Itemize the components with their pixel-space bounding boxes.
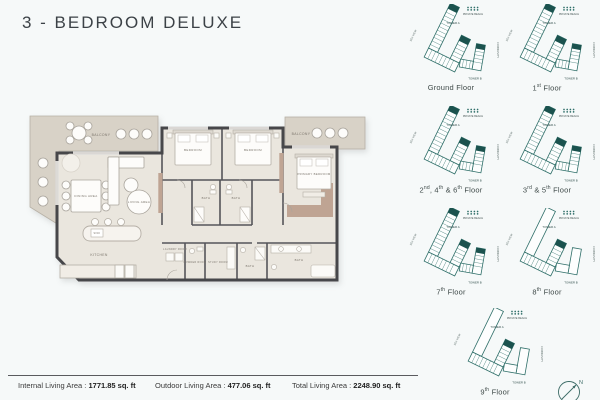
sink-label: SINK (94, 232, 101, 235)
tower-b-label: TOWER B (512, 381, 526, 385)
tower-b-label: TOWER B (468, 281, 482, 285)
bath-2-label: BATH (232, 196, 241, 200)
private-beach-icon (511, 311, 522, 315)
keyplan-3rd-5th-floor: PRIVATE BEACHTOWER ATOWER BCOMMUNITYSEA … (499, 106, 595, 195)
kitchen-label: KITCHEN (90, 253, 108, 257)
private-beach-icon (467, 109, 478, 113)
page-title: 3 - BEDROOM DELUXE (22, 13, 243, 33)
private-beach-label: PRIVATE BEACH (463, 12, 483, 16)
tower-a-label: TOWER A (446, 225, 459, 229)
compass-north-label: N (579, 380, 583, 386)
keyplan-grid: PRIVATE BEACHTOWER ATOWER BCOMMUNITYSEA … (395, 0, 600, 400)
tower-b-label: TOWER B (468, 77, 482, 81)
floor-label: 1st Floor (499, 83, 595, 93)
study-label: STUDY ROOM (208, 261, 228, 264)
tower-b-label: TOWER B (564, 77, 578, 81)
internal-area-label: Internal Living Area : (18, 381, 86, 390)
sea-view-label: SEA VIEW (505, 131, 514, 144)
bath-3-label: BATH (246, 264, 255, 268)
balcony-left-label: BALCONY (92, 133, 111, 137)
tower-b-label: TOWER B (468, 179, 482, 183)
compass: N (556, 376, 586, 400)
sea-view-label: SEA VIEW (505, 29, 514, 42)
keyplan-2nd-4th-6th-floor: PRIVATE BEACHTOWER ATOWER BCOMMUNITYSEA … (403, 106, 499, 195)
private-beach-icon (563, 109, 574, 113)
sea-view-label: SEA VIEW (505, 233, 514, 246)
tower-a-label: TOWER A (542, 21, 555, 25)
floor-label: Ground Floor (403, 83, 499, 92)
private-beach-icon (563, 211, 574, 215)
floor-label: 2nd, 4th & 6th Floor (403, 185, 499, 195)
tower-b-label: TOWER B (564, 281, 578, 285)
sea-view-label: SEA VIEW (409, 131, 418, 144)
tower-a-label: TOWER A (446, 21, 459, 25)
sea-view-label: SEA VIEW (453, 333, 462, 346)
dining-label: DINING AREA (74, 194, 97, 198)
powder-label: POWDER ROOM (184, 261, 207, 264)
private-beach-icon (467, 211, 478, 215)
keyplan-map: PRIVATE BEACHTOWER ATOWER BCOMMUNITYSEA … (499, 4, 595, 82)
keyplan-9th-floor: PRIVATE BEACHTOWER ATOWER BCOMMUNITYSEA … (447, 308, 543, 397)
tower-a-label: TOWER A (542, 123, 555, 127)
bedroom-2-label: BEDROOM (244, 148, 262, 152)
tower-a-label: TOWER A (542, 225, 555, 229)
floor-plan: BALCONY BALCONY DINING AREA LIVING AREA … (15, 95, 405, 345)
private-beach-label: PRIVATE BEACH (559, 216, 579, 220)
living-label: LIVING AREA (128, 200, 151, 204)
community-label: COMMUNITY (540, 346, 543, 362)
sea-view-label: SEA VIEW (409, 233, 418, 246)
tower-b-label: TOWER B (564, 179, 578, 183)
sea-view-label: SEA VIEW (409, 29, 418, 42)
keyplan-ground-floor: PRIVATE BEACHTOWER ATOWER BCOMMUNITYSEA … (403, 4, 499, 92)
primary-bath-label: BATH (295, 258, 304, 262)
keyplan-1st-floor: PRIVATE BEACHTOWER ATOWER BCOMMUNITYSEA … (499, 4, 595, 93)
keyplan-map: PRIVATE BEACHTOWER ATOWER BCOMMUNITYSEA … (447, 308, 543, 386)
internal-area-value: 1771.85 sq. ft (88, 381, 135, 390)
internal-area-stat: Internal Living Area : 1771.85 sq. ft (18, 381, 136, 390)
floor-label: 8th Floor (499, 287, 595, 297)
community-label: COMMUNITY (592, 144, 595, 160)
floor-label: 9th Floor (447, 387, 543, 397)
total-area-value: 2248.90 sq. ft (353, 381, 400, 390)
tower-a-label: TOWER A (446, 123, 459, 127)
floor-label: 3rd & 5th Floor (499, 185, 595, 195)
community-label: COMMUNITY (592, 246, 595, 262)
outdoor-area-label: Outdoor Living Area : (155, 381, 225, 390)
keyplan-map: PRIVATE BEACHTOWER ATOWER BCOMMUNITYSEA … (403, 208, 499, 286)
private-beach-label: PRIVATE BEACH (559, 12, 579, 16)
primary-bedroom-label: PRIMARY BEDROOM (297, 172, 330, 176)
laundry-label: LAUNDRY ROOM (163, 248, 187, 251)
community-label: COMMUNITY (592, 42, 595, 58)
outdoor-area-stat: Outdoor Living Area : 477.06 sq. ft (155, 381, 271, 390)
private-beach-label: PRIVATE BEACH (463, 114, 483, 118)
private-beach-label: PRIVATE BEACH (559, 114, 579, 118)
keyplan-8th-floor: PRIVATE BEACHTOWER ATOWER BCOMMUNITYSEA … (499, 208, 595, 297)
private-beach-icon (467, 7, 478, 11)
study-fixtures (227, 247, 235, 269)
keyplan-map: PRIVATE BEACHTOWER ATOWER BCOMMUNITYSEA … (499, 106, 595, 184)
total-area-stat: Total Living Area : 2248.90 sq. ft (292, 381, 400, 390)
tower-a-label: TOWER A (490, 325, 503, 329)
keyplan-map: PRIVATE BEACHTOWER ATOWER BCOMMUNITYSEA … (499, 208, 595, 286)
private-beach-label: PRIVATE BEACH (507, 316, 527, 320)
bath-1-label: BATH (202, 196, 211, 200)
keyplan-7th-floor: PRIVATE BEACHTOWER ATOWER BCOMMUNITYSEA … (403, 208, 499, 297)
keyplan-map: PRIVATE BEACHTOWER ATOWER BCOMMUNITYSEA … (403, 106, 499, 184)
balcony-right-label: BALCONY (292, 132, 311, 136)
keyplan-map: PRIVATE BEACHTOWER ATOWER BCOMMUNITYSEA … (403, 4, 499, 82)
outdoor-area-value: 477.06 sq. ft (228, 381, 271, 390)
footer-divider (8, 375, 418, 376)
brochure-page: 3 - BEDROOM DELUXE (0, 0, 600, 400)
floor-label: 7th Floor (403, 287, 499, 297)
bedroom-1-label: BEDROOM (184, 148, 202, 152)
private-beach-icon (563, 7, 574, 11)
total-area-label: Total Living Area : (292, 381, 351, 390)
private-beach-label: PRIVATE BEACH (463, 216, 483, 220)
